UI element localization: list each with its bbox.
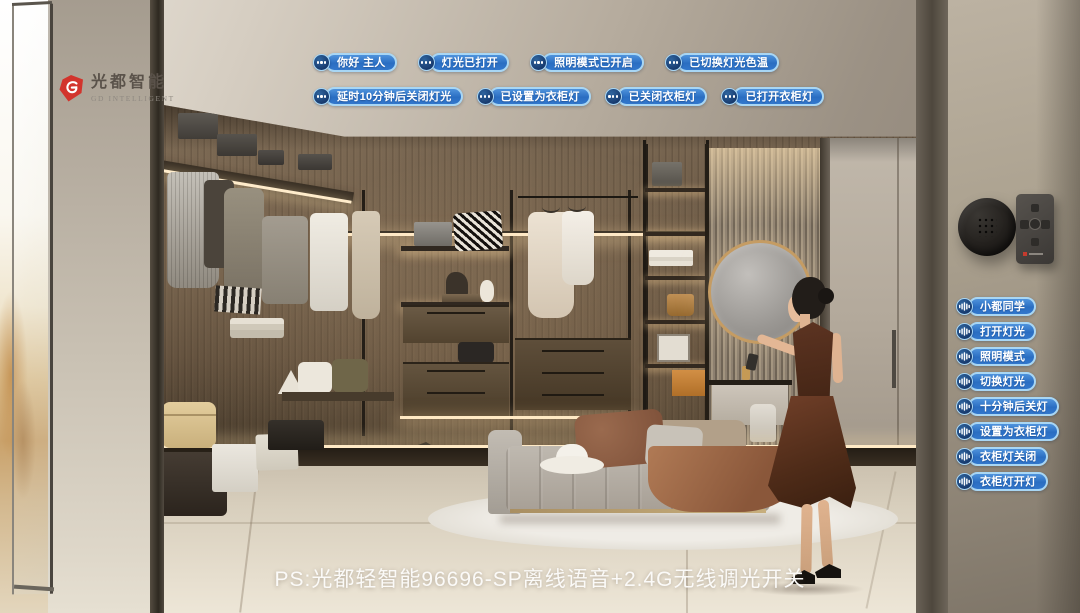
- gd-logo-mark-icon: [58, 74, 85, 108]
- poster-scene: 光都智能 GD INTELLIGENT 你好 主人灯光已打开照明模式已开启已切换…: [0, 0, 1080, 613]
- shelf-board: [645, 232, 707, 236]
- voice-command-bubble: 小都同学: [956, 297, 1036, 316]
- bench-board: [282, 392, 394, 401]
- voice-command-bubble: 十分钟后关灯: [956, 397, 1059, 416]
- remote-right-button: [1041, 220, 1050, 229]
- striped-garment: [214, 285, 262, 314]
- wardrobe-door-seam: [897, 138, 899, 466]
- olive-pillow: [332, 359, 368, 392]
- voice-reply-bubble: 你好 主人: [313, 53, 397, 72]
- storage-box: [178, 113, 218, 139]
- bubble-label: 设置为衣柜灯: [968, 422, 1059, 441]
- storage-box: [652, 162, 682, 186]
- bubble-label: 已关闭衣柜灯: [617, 87, 708, 106]
- handheld-remote: [745, 353, 758, 371]
- voice-command-bubble: 衣柜灯关闭: [956, 447, 1048, 466]
- bubble-label: 照明模式: [968, 347, 1036, 366]
- voice-reply-bubble: 灯光已打开: [418, 53, 510, 72]
- ellipsis-icon: [477, 88, 494, 105]
- brand-name-cn: 光都智能: [91, 74, 175, 92]
- orange-drawer: [672, 370, 708, 396]
- drawer-handle: [427, 392, 485, 394]
- shelf-board: [645, 364, 707, 368]
- ellipsis-icon: [313, 54, 330, 71]
- bubble-label: 已切换灯光色温: [677, 53, 779, 72]
- ellipsis-icon: [605, 88, 622, 105]
- bubble-label: 已打开衣柜灯: [733, 87, 824, 106]
- shelf-board: [645, 188, 707, 192]
- woman-dress-skirt: [768, 396, 856, 508]
- remote-bottom-button: [1031, 238, 1039, 246]
- vase-decor: [480, 280, 494, 302]
- ellipsis-icon: [313, 88, 330, 105]
- voice-reply-bubble: 已设置为衣柜灯: [477, 87, 591, 106]
- voice-wave-icon: [956, 373, 973, 390]
- remote-brand-line: [1029, 253, 1043, 255]
- brand-logo-text: 光都智能 GD INTELLIGENT: [91, 74, 175, 103]
- ellipsis-icon: [530, 54, 547, 71]
- stacked-books: [442, 294, 482, 302]
- folded-towels: [649, 250, 693, 266]
- drawer-handle: [542, 350, 604, 352]
- voice-wave-icon: [956, 298, 973, 315]
- handbag: [458, 342, 494, 364]
- woman-figure: [745, 270, 870, 605]
- bubble-label: 已设置为衣柜灯: [489, 87, 591, 106]
- clothes-hanger: [568, 200, 586, 212]
- voice-command-bubble: 设置为衣柜灯: [956, 422, 1059, 441]
- storage-box-white: [212, 444, 258, 492]
- glass-door: [12, 4, 53, 595]
- shelf-board: [645, 320, 707, 324]
- voice-reply-bubble: 延时10分钟后关闭灯光: [313, 87, 463, 106]
- bubble-label: 十分钟后关灯: [968, 397, 1059, 416]
- corner-pillar-edge: [916, 0, 948, 613]
- sun-hat-brim: [540, 456, 604, 474]
- voice-command-bubble: 衣柜灯开灯: [956, 472, 1048, 491]
- dimmer-remote-device: [1016, 194, 1054, 264]
- voice-command-bubble: 照明模式: [956, 347, 1036, 366]
- bubble-label: 切换灯光: [968, 372, 1036, 391]
- white-pillow: [298, 362, 332, 393]
- clothes-hanger: [542, 201, 560, 213]
- drawer-handle: [427, 312, 485, 314]
- ellipsis-icon: [418, 54, 435, 71]
- hanging-rod: [518, 196, 638, 198]
- hanging-lace-top: [562, 211, 594, 285]
- drawer-front: [403, 305, 509, 343]
- voice-reply-bubble: 已切换灯光色温: [665, 53, 779, 72]
- brand-logo: 光都智能 GD INTELLIGENT: [58, 74, 175, 108]
- remote-brand-dot: [1023, 252, 1027, 256]
- woman-dress-top: [789, 322, 837, 400]
- hanging-hoodie: [224, 188, 264, 296]
- photo-frame: [657, 334, 690, 362]
- bubble-label: 小都同学: [968, 297, 1036, 316]
- voice-reply-row-2: 延时10分钟后关闭灯光已设置为衣柜灯已关闭衣柜灯已打开衣柜灯: [313, 87, 824, 106]
- voice-wave-icon: [956, 423, 973, 440]
- voice-reply-bubble: 照明模式已开启: [530, 53, 644, 72]
- brand-name-en: GD INTELLIGENT: [91, 94, 175, 103]
- voice-wave-icon: [956, 348, 973, 365]
- woman-hair-bun: [818, 288, 834, 304]
- wardrobe-handle: [892, 330, 896, 388]
- voice-reply-bubble: 已打开衣柜灯: [721, 87, 824, 106]
- voice-wave-icon: [956, 448, 973, 465]
- storage-box: [298, 154, 332, 170]
- voice-command-column: 小都同学打开灯光照明模式切换灯光十分钟后关灯设置为衣柜灯衣柜灯关闭衣柜灯开灯: [956, 297, 1059, 491]
- voice-wave-icon: [956, 323, 973, 340]
- shelf-board: [645, 276, 707, 280]
- bubble-label: 打开灯光: [968, 322, 1036, 341]
- storage-box: [258, 150, 284, 165]
- storage-box: [414, 222, 452, 246]
- voice-reply-bubble: 已关闭衣柜灯: [605, 87, 708, 106]
- hanging-white-shirt: [310, 213, 348, 311]
- hat-box-rim: [162, 414, 216, 416]
- remote-left-button: [1020, 220, 1029, 229]
- remote-top-button: [1031, 204, 1039, 212]
- voice-wave-icon: [956, 398, 973, 415]
- speaker-grille-icon: [977, 217, 997, 237]
- hat-box: [162, 402, 216, 448]
- folded-sweaters: [230, 318, 284, 338]
- product-caption: PS:光都轻智能96696-SP离线语音+2.4G无线调光开关: [0, 563, 1080, 593]
- bubble-label: 衣柜灯开灯: [968, 472, 1048, 491]
- voice-command-bubble: 打开灯光: [956, 322, 1036, 341]
- bubble-label: 你好 主人: [325, 53, 397, 72]
- bubble-label: 衣柜灯关闭: [968, 447, 1048, 466]
- bubble-label: 延时10分钟后关闭灯光: [325, 87, 463, 106]
- bubble-label: 照明模式已开启: [542, 53, 644, 72]
- dark-basket: [268, 420, 324, 450]
- bubble-label: 灯光已打开: [430, 53, 510, 72]
- hanging-beige-dress: [352, 211, 380, 319]
- storage-box: [217, 134, 257, 156]
- gold-handbag: [667, 294, 694, 316]
- voice-command-bubble: 切换灯光: [956, 372, 1036, 391]
- drawer-handle: [427, 370, 485, 372]
- voice-wave-icon: [956, 473, 973, 490]
- voice-speaker-device: [958, 198, 1016, 256]
- hanging-coat: [262, 216, 308, 304]
- woman-leg: [818, 500, 834, 569]
- remote-center-button: [1029, 218, 1041, 230]
- houndstooth-pillow: [453, 210, 504, 251]
- drawer-handle: [542, 372, 604, 374]
- voice-reply-row-1: 你好 主人灯光已打开照明模式已开启已切换灯光色温: [313, 53, 779, 72]
